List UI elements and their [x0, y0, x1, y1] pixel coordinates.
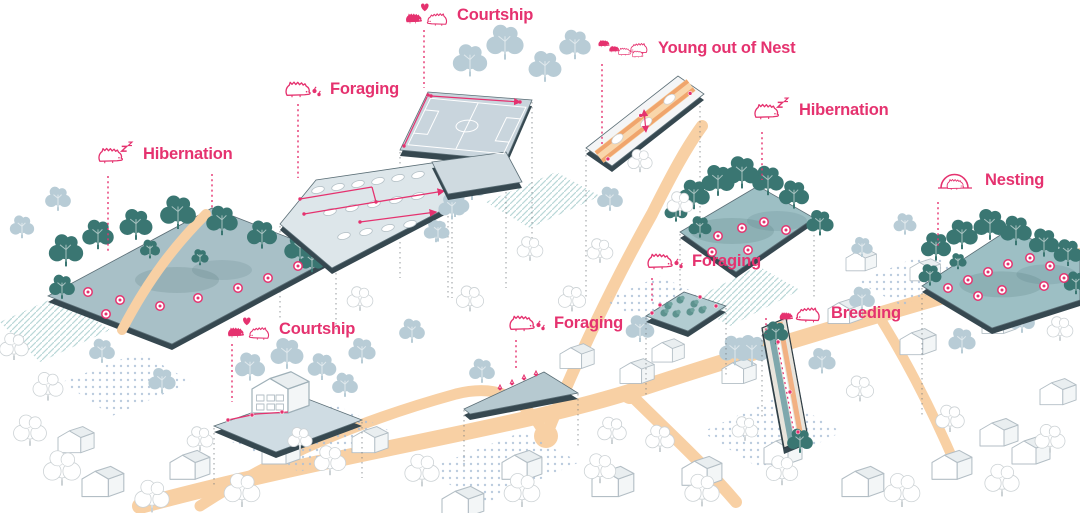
annotation-label: Foraging — [692, 253, 761, 270]
annotation-label: Courtship — [279, 321, 355, 338]
hedgehog-family-icon — [597, 34, 651, 62]
annotation-label: Young out of Nest — [658, 40, 795, 57]
hedgehog-foraging-icon — [645, 248, 685, 274]
annotation-hibernation-right: Hibernation — [752, 96, 888, 124]
hedgehog-nesting-icon — [938, 168, 978, 192]
hedgehog-breeding-icon — [778, 300, 824, 326]
annotation-label: Breeding — [831, 305, 901, 322]
annotation-hibernation-left: Hibernation — [96, 140, 232, 168]
hedgehog-foraging-icon — [283, 76, 323, 102]
annotation-foraging-mid: Foraging — [645, 248, 761, 274]
annotation-label: Foraging — [554, 315, 623, 332]
hedgehog-courtship-icon — [226, 316, 272, 342]
hedgehog-courtship-icon — [404, 2, 450, 28]
annotation-label: Hibernation — [143, 146, 232, 163]
annotation-courtship-bottom: Courtship — [226, 316, 355, 342]
annotation-nesting: Nesting — [938, 168, 1044, 192]
annotation-foraging-center: Foraging — [507, 310, 623, 336]
annotation-young-out-of-nest: Young out of Nest — [597, 34, 795, 62]
house-on-platform — [252, 372, 309, 413]
habitat-diagram: Hibernation Foraging Courtship Young out… — [0, 0, 1080, 513]
annotation-label: Foraging — [330, 81, 399, 98]
annotation-courtship-top: Courtship — [404, 2, 533, 28]
annotation-label: Courtship — [457, 7, 533, 24]
annotation-breeding: Breeding — [778, 300, 901, 326]
annotation-label: Nesting — [985, 172, 1044, 189]
annotation-label: Hibernation — [799, 102, 888, 119]
hedgehog-sleeping-icon — [96, 140, 136, 168]
hedgehog-sleeping-icon — [752, 96, 792, 124]
annotation-foraging-top: Foraging — [283, 76, 399, 102]
illustration-canvas — [0, 0, 1080, 513]
hedgehog-foraging-icon — [507, 310, 547, 336]
